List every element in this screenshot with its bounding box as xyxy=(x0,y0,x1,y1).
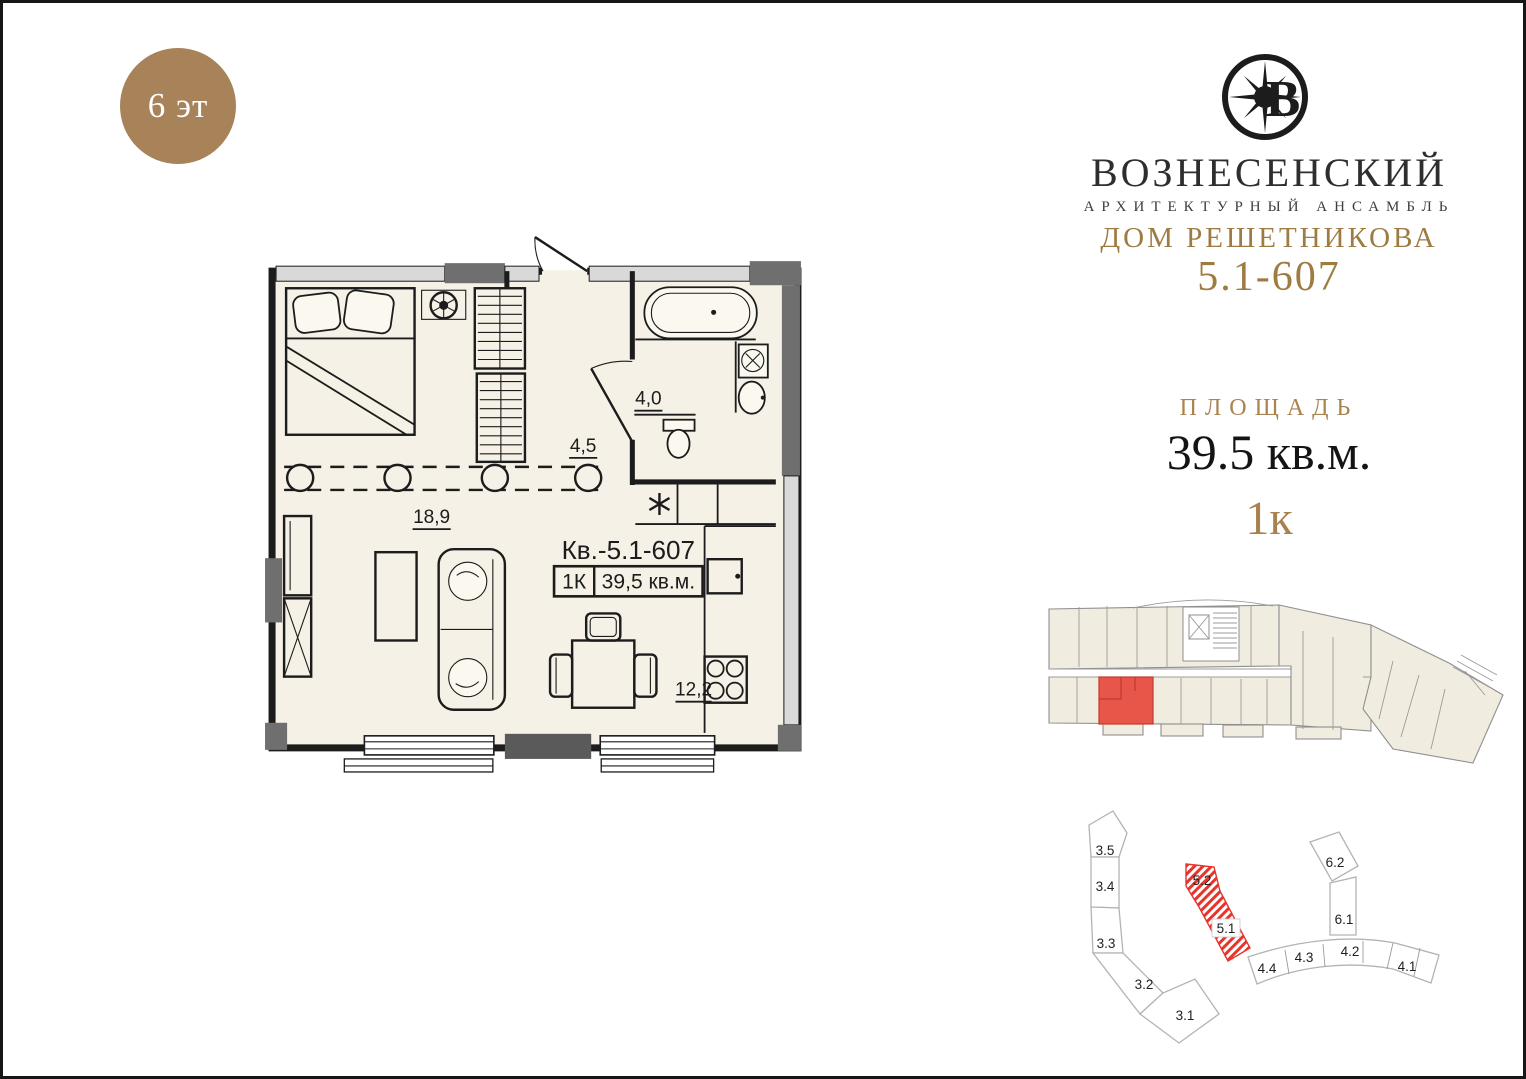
area-label: ПЛОЩАДЬ xyxy=(1015,395,1523,422)
site-label-3-1: 3.1 xyxy=(1176,1008,1195,1023)
floor-badge-label: 6 эт xyxy=(148,86,209,126)
site-label-5-1: 5.1 xyxy=(1217,921,1236,936)
wardrobe-lower xyxy=(477,374,525,462)
site-label-3-3: 3.3 xyxy=(1097,936,1116,951)
bathtub xyxy=(644,287,756,338)
site-label-6-1: 6.1 xyxy=(1335,912,1354,927)
site-label-3-2: 3.2 xyxy=(1135,977,1154,992)
floor-overview-plan xyxy=(1041,591,1523,787)
site-label-6-2: 6.2 xyxy=(1326,855,1345,870)
apartment-floor-plan: 18,9 4,5 4,0 12,2 Кв.-5.1-607 1К 39,5 кв… xyxy=(256,226,818,778)
living-area-label: 18,9 xyxy=(413,507,450,528)
apartment-type-label: 1К xyxy=(562,570,587,593)
site-label-3-4: 3.4 xyxy=(1096,879,1115,894)
hall-area-label: 4,5 xyxy=(570,436,596,457)
brand-name: ВОЗНЕСЕНСКИЙ xyxy=(1015,149,1523,196)
overview-highlighted-unit xyxy=(1099,677,1153,724)
site-label-4-4: 4.4 xyxy=(1258,961,1277,976)
area-value: 39.5 кв.м. xyxy=(1015,423,1523,481)
site-label-4-2: 4.2 xyxy=(1341,944,1360,959)
bed xyxy=(286,288,414,435)
unit-code: 5.1-607 xyxy=(1015,253,1523,301)
sofa xyxy=(439,549,505,710)
washing-machine xyxy=(739,344,768,377)
site-label-3-5: 3.5 xyxy=(1096,843,1115,858)
site-sections xyxy=(1089,811,1439,1043)
brand-logo-icon: В xyxy=(1217,49,1313,145)
windows xyxy=(344,734,714,772)
tall-cabinet xyxy=(284,516,311,677)
wardrobe-upper xyxy=(475,288,525,368)
bathroom-sink xyxy=(739,382,765,414)
apartment-area-label: 39,5 кв.м. xyxy=(602,570,695,593)
rooms-count: 1к xyxy=(1015,491,1523,546)
building-name: ДОМ РЕШЕТНИКОВА xyxy=(1015,222,1523,255)
coffee-table xyxy=(375,552,416,640)
site-label-5-2: 5.2 xyxy=(1193,873,1212,888)
site-plan: 3.5 3.4 3.3 3.2 3.1 5.2 5.1 4.4 4.3 4.2 … xyxy=(1043,795,1523,1073)
site-label-4-1: 4.1 xyxy=(1398,959,1417,974)
floor-badge: 6 эт xyxy=(120,48,236,164)
svg-text:В: В xyxy=(1266,71,1301,128)
apartment-number-label: Кв.-5.1-607 xyxy=(562,535,695,565)
brand-tagline: АРХИТЕКТУРНЫЙ АНСАМБЛЬ xyxy=(1015,199,1523,216)
bath-area-label: 4,0 xyxy=(635,389,661,410)
entry-door xyxy=(535,237,587,271)
brochure-page: 6 эт В ВОЗНЕСЕНСКИЙ АРХИТЕКТУРНЫЙ АНСАМБ… xyxy=(0,0,1526,1079)
site-label-4-3: 4.3 xyxy=(1295,950,1314,965)
kitchen-area-label: 12,2 xyxy=(675,680,712,701)
